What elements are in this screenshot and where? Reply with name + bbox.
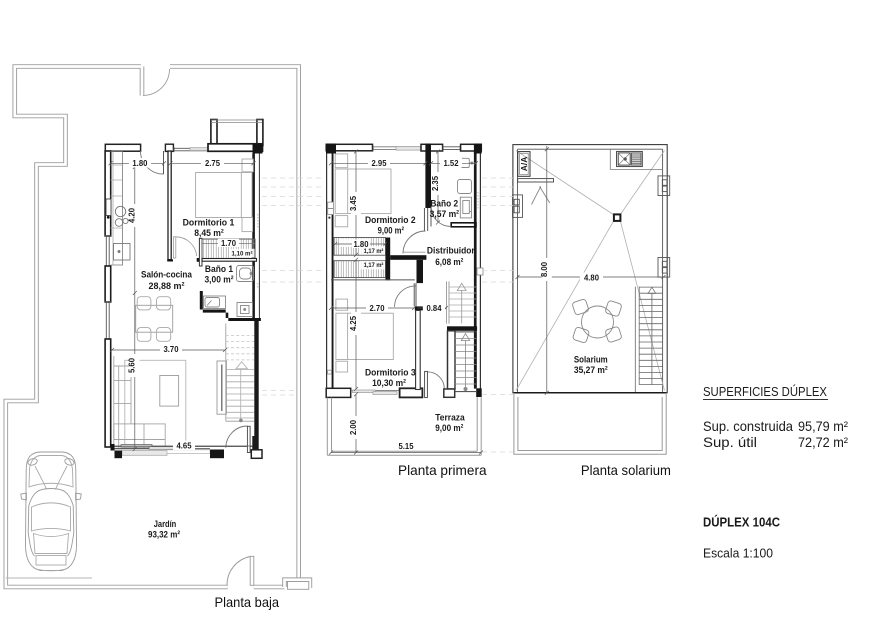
- svg-text:Terraza: Terraza: [435, 413, 465, 423]
- svg-text:3.45: 3.45: [349, 195, 358, 211]
- svg-text:Escala 1:100: Escala 1:100: [703, 546, 773, 561]
- svg-text:2.00: 2.00: [349, 419, 358, 435]
- svg-text:Sup. construida: Sup. construida: [703, 418, 793, 434]
- svg-text:Salón-cocina: Salón-cocina: [141, 270, 193, 280]
- svg-text:1,17 m²: 1,17 m²: [364, 262, 384, 269]
- svg-text:1,10 m²: 1,10 m²: [232, 251, 253, 258]
- svg-text:Dormitorio 3: Dormitorio 3: [365, 368, 416, 378]
- svg-text:9,00 m²: 9,00 m²: [435, 423, 463, 433]
- svg-text:72,72 m²: 72,72 m²: [798, 434, 848, 450]
- svg-text:2.75: 2.75: [205, 159, 221, 168]
- svg-text:1.52: 1.52: [444, 159, 460, 168]
- svg-text:4.20: 4.20: [128, 207, 137, 223]
- svg-text:8.00: 8.00: [540, 261, 549, 277]
- svg-text:4.80: 4.80: [584, 274, 600, 283]
- svg-text:5.60: 5.60: [128, 357, 137, 373]
- svg-text:95,79 m²: 95,79 m²: [798, 418, 848, 434]
- svg-text:35,27 m²: 35,27 m²: [574, 365, 608, 375]
- svg-text:4.25: 4.25: [349, 315, 358, 331]
- svg-text:Jardín: Jardín: [154, 519, 177, 529]
- svg-text:10,30 m²: 10,30 m²: [372, 378, 406, 388]
- svg-text:2.70: 2.70: [370, 304, 386, 313]
- svg-text:Dormitorio 1: Dormitorio 1: [183, 218, 235, 228]
- svg-text:DÚPLEX 104C: DÚPLEX 104C: [703, 515, 781, 530]
- svg-text:8,45 m²: 8,45 m²: [194, 228, 224, 238]
- svg-text:1,17 m²: 1,17 m²: [364, 248, 384, 255]
- svg-text:Planta solarium: Planta solarium: [581, 462, 671, 478]
- svg-text:1.80: 1.80: [132, 159, 148, 168]
- svg-text:Planta baja: Planta baja: [215, 594, 280, 610]
- svg-text:Baño 1: Baño 1: [205, 264, 233, 274]
- svg-text:93,32 m²: 93,32 m²: [148, 530, 180, 540]
- svg-text:SUPERFICIES DÚPLEX: SUPERFICIES DÚPLEX: [703, 384, 827, 399]
- svg-text:1.70: 1.70: [221, 239, 237, 248]
- svg-text:3,57 m²: 3,57 m²: [430, 209, 459, 219]
- svg-text:3.70: 3.70: [164, 345, 180, 354]
- svg-text:6,08 m²: 6,08 m²: [435, 257, 463, 267]
- svg-text:2.95: 2.95: [372, 159, 388, 168]
- svg-text:9,00 m²: 9,00 m²: [378, 226, 404, 236]
- svg-text:Solarium: Solarium: [574, 355, 608, 365]
- svg-text:5.15: 5.15: [399, 442, 415, 451]
- svg-text:A/A: A/A: [519, 157, 529, 172]
- svg-text:2.35: 2.35: [431, 175, 440, 191]
- svg-text:4.65: 4.65: [177, 442, 193, 451]
- svg-text:Planta primera: Planta primera: [398, 462, 487, 478]
- svg-text:28,88 m²: 28,88 m²: [149, 281, 185, 291]
- svg-text:Baño 2: Baño 2: [430, 199, 458, 209]
- svg-text:3,00 m²: 3,00 m²: [205, 275, 234, 285]
- svg-text:Sup. útil: Sup. útil: [703, 434, 757, 450]
- svg-text:Distribuidor: Distribuidor: [427, 246, 475, 256]
- svg-text:Dormitorio 2: Dormitorio 2: [365, 215, 416, 225]
- svg-text:0.84: 0.84: [427, 304, 443, 313]
